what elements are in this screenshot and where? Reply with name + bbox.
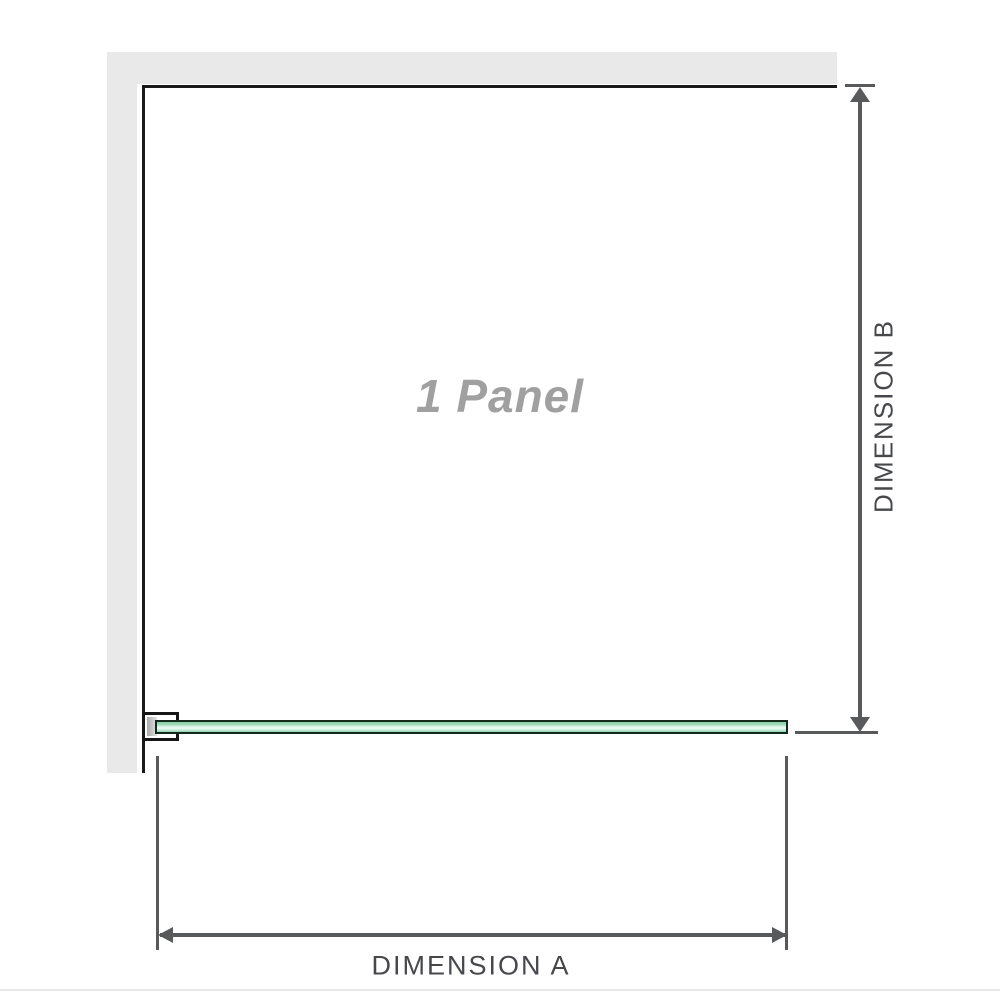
arrow-left-icon xyxy=(158,927,173,943)
panel-left-edge xyxy=(142,85,145,773)
arrow-up-icon xyxy=(850,87,870,102)
arrow-right-icon xyxy=(772,927,787,943)
dimension-b-label: DIMENSION B xyxy=(869,319,900,513)
dimension-a-line xyxy=(160,933,785,937)
wall-left xyxy=(107,52,137,773)
wall-top xyxy=(107,52,837,84)
dimension-a-extension-left xyxy=(156,756,159,950)
panel-dimension-diagram: 1 Panel DIMENSION B DIMENSION A xyxy=(0,0,1000,1000)
dimension-a-extension-right xyxy=(785,756,788,950)
dimension-a-label: DIMENSION A xyxy=(371,951,570,982)
dimension-b-line xyxy=(858,90,862,726)
bottom-divider xyxy=(0,989,1000,991)
arrow-down-icon xyxy=(850,717,870,732)
panel-watermark-label: 1 Panel xyxy=(416,369,584,423)
glass-panel xyxy=(155,720,788,734)
panel-top-edge xyxy=(142,85,837,88)
